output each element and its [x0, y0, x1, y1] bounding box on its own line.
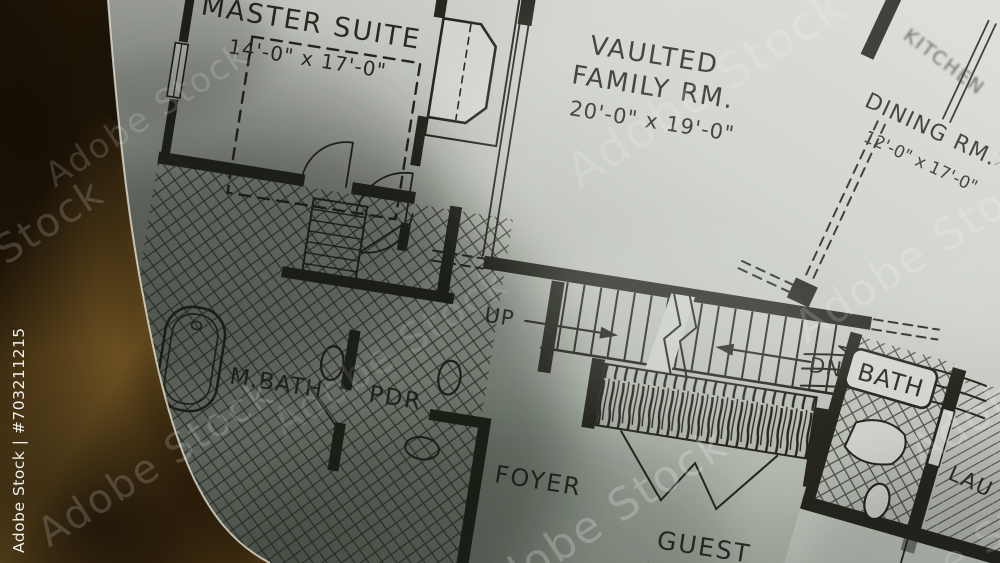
watermark-asset-id: Adobe Stock | #703211215: [10, 327, 28, 553]
stock-photo-floorplan: DINING RM. 12'-0" x 17'-0" KITCHEN BATH: [0, 0, 1000, 563]
floorplan-scene: DINING RM. 12'-0" x 17'-0" KITCHEN BATH: [0, 0, 1000, 563]
